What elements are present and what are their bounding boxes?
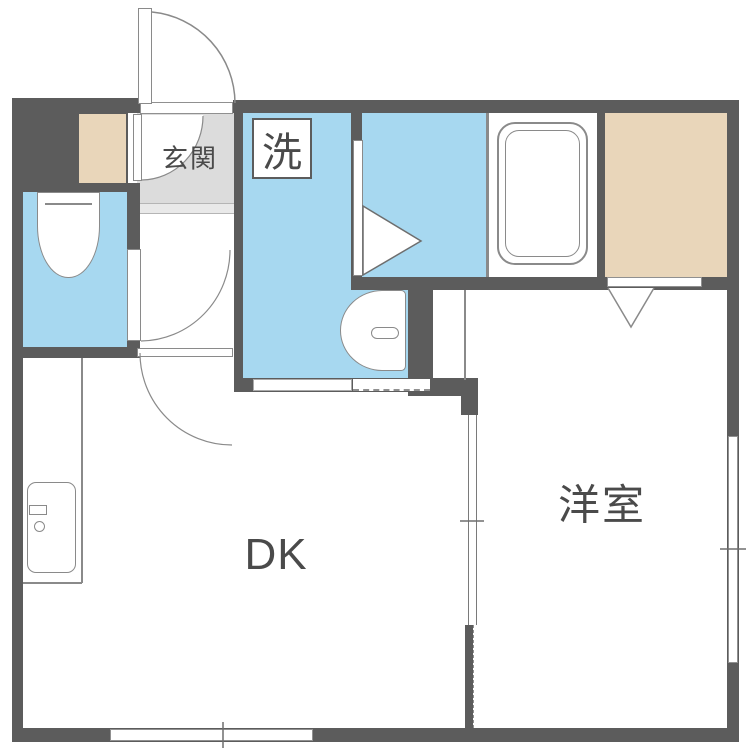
entrance-door-arc [152,12,235,103]
western-room-label: 洋室 [558,472,646,533]
shower-room-floor [362,113,486,277]
toilet-tank-lip [45,203,92,205]
sliding-partition-track [468,415,477,625]
top-outer-wall-right [233,100,739,113]
bath-closet-wall [597,113,605,277]
genkan-label: 玄関 [162,139,218,176]
dk-door-leaf [137,348,233,357]
washroom-dashed-opening [353,379,430,391]
genkan-door-leaf [133,114,142,181]
closet-opening [607,277,702,287]
toilet-east-wall-upper [127,183,140,249]
floor-plan: 玄関 洗 DK 洋室 [0,0,750,750]
bottom-window [110,729,313,741]
closet-floor [605,113,727,277]
closet-door-v-fill [608,288,654,327]
laundry-label: 洗 [262,120,302,178]
bathtub-inner [505,130,580,257]
toilet-door-swing [141,250,230,341]
partition-lower-wall [465,625,473,728]
kitchen-faucet [29,505,47,515]
right-window [728,436,738,663]
dk-door-arc [140,353,232,445]
partition-stub-vertical [461,396,478,415]
washbasin-faucet [371,327,399,339]
alcove-divider-line [464,290,466,380]
toilet-door-leaf [127,249,141,341]
toilet-bottom-wall [12,347,137,358]
kitchen-counter-edge-v [81,358,83,583]
dk-label: DK [244,530,307,580]
left-outer-wall [12,98,23,742]
closet-door-v [608,288,654,327]
genkan-step [137,203,237,214]
kitchen-knob [34,521,45,532]
entrance-door-leaf [138,8,152,104]
washbasin-east-wall [408,290,433,380]
toilet-door-arc [141,250,230,341]
entry-side-closet [79,114,126,183]
shower-bath-divider [486,113,489,277]
kitchen-counter-edge-h [23,582,82,584]
shower-door-panel [353,140,363,276]
partition-dashed-strip [473,625,479,728]
entrance-threshold [140,102,233,114]
hall-east-wall [234,113,243,392]
washroom-opening [253,379,352,391]
